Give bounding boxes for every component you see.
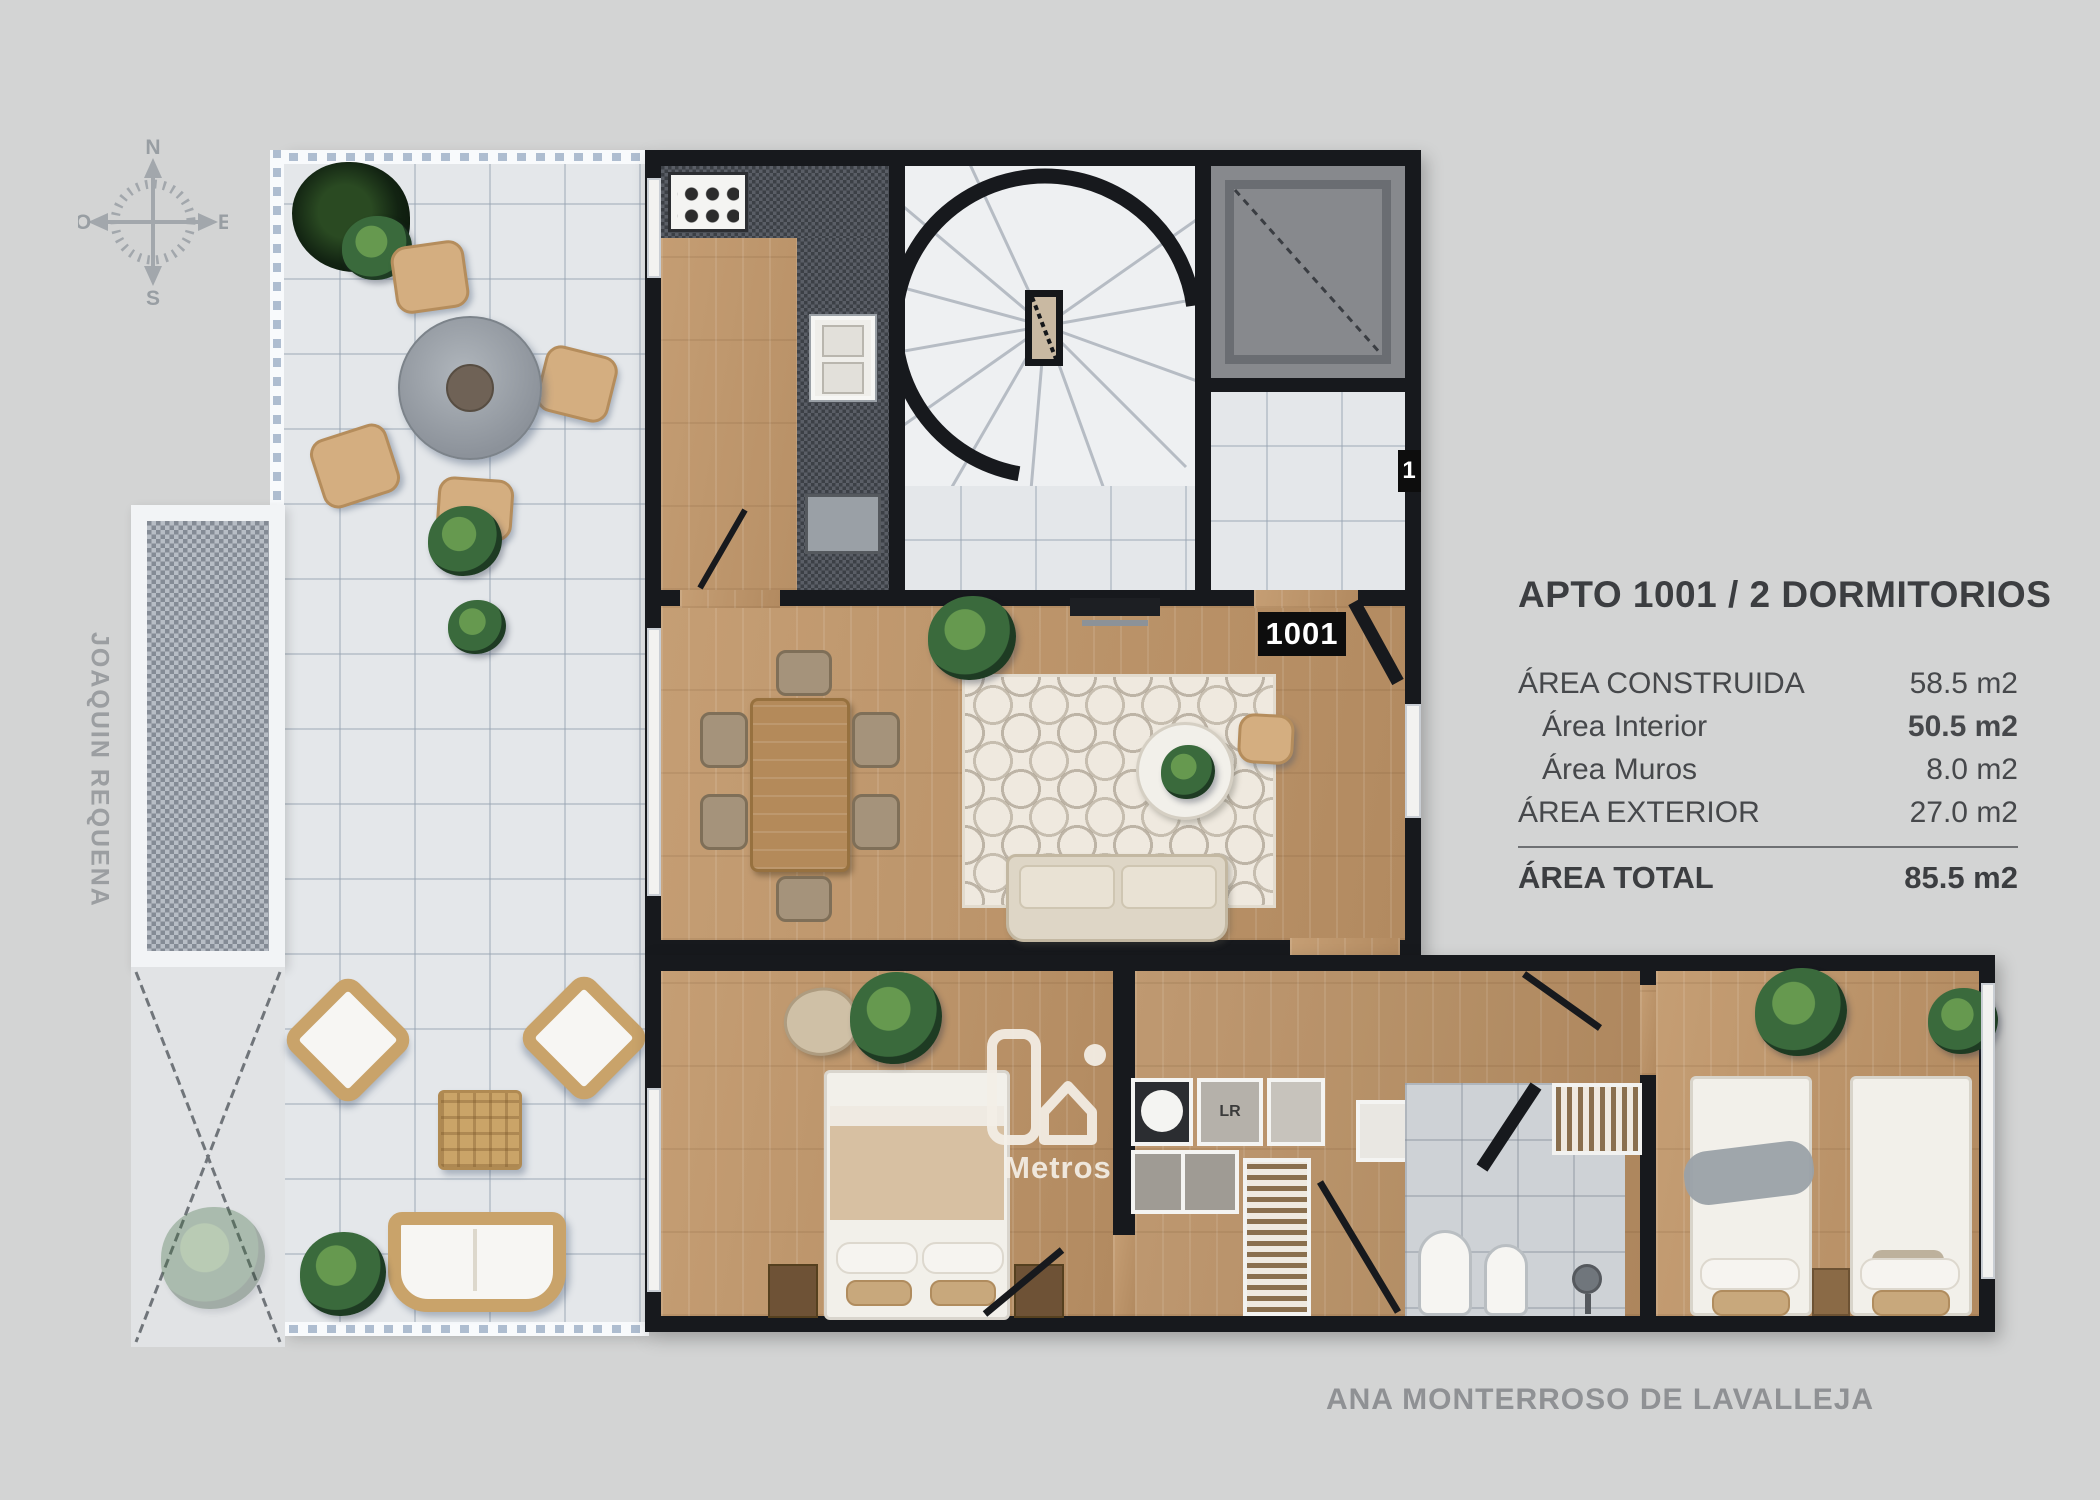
hall-living-opening bbox=[1254, 590, 1358, 608]
sofa-cushion bbox=[1019, 865, 1115, 909]
shower-pipe bbox=[1585, 1294, 1591, 1314]
wicker-coffee-table bbox=[438, 1090, 522, 1170]
coffee-table bbox=[1136, 722, 1234, 820]
bed-pillow-accent bbox=[930, 1280, 996, 1306]
terrace-round-table bbox=[398, 316, 542, 460]
divider bbox=[1518, 846, 2018, 848]
shaft bbox=[1211, 166, 1405, 378]
unit-number-tag-partial: 1 bbox=[1398, 450, 1421, 492]
adjacent-void-area bbox=[131, 967, 285, 1347]
brand-logo-icon: Metros bbox=[978, 1028, 1138, 1188]
stove-burners bbox=[677, 179, 739, 223]
washer-drum bbox=[1141, 1090, 1183, 1132]
shower-head bbox=[1572, 1264, 1602, 1294]
stove bbox=[668, 172, 748, 232]
info-panel: APTO 1001 / 2 DORMITORIOS ÁREA CONSTRUID… bbox=[1518, 574, 2018, 896]
closet-rack bbox=[1552, 1083, 1642, 1155]
dining-chair bbox=[700, 712, 748, 768]
compass-south-label: S bbox=[146, 287, 160, 306]
table-centerpiece bbox=[446, 364, 494, 412]
nightstand bbox=[1812, 1268, 1850, 1316]
area-row: Área Muros 8.0 m2 bbox=[1518, 748, 2018, 791]
storage-cabinet bbox=[1131, 1150, 1239, 1214]
living-terrace-door bbox=[647, 628, 661, 896]
bed-pillow bbox=[1860, 1258, 1960, 1290]
dining-chair bbox=[852, 712, 900, 768]
compass-north-label: N bbox=[145, 138, 160, 159]
gravel-planter-frame bbox=[131, 505, 285, 967]
area-total-value: 85.5 m2 bbox=[1904, 860, 2018, 896]
entry-door bbox=[1405, 704, 1421, 818]
tv-console bbox=[1082, 620, 1148, 626]
wicker-loveseat bbox=[388, 1212, 566, 1312]
area-row-label: Área Interior bbox=[1518, 705, 1707, 748]
dining-chair bbox=[776, 876, 832, 922]
bedroom2-door-opening bbox=[1640, 985, 1656, 1075]
bed-pillow-accent bbox=[846, 1280, 912, 1306]
laundry-unit: LR bbox=[1197, 1078, 1263, 1146]
gravel-planter bbox=[147, 521, 269, 951]
tv bbox=[1070, 598, 1160, 616]
bed-pillow bbox=[836, 1242, 918, 1274]
area-row-value: 58.5 m2 bbox=[1910, 662, 2018, 705]
area-row-label: ÁREA CONSTRUIDA bbox=[1518, 662, 1805, 705]
side-chair bbox=[1237, 713, 1296, 766]
bed-pillow bbox=[1700, 1258, 1800, 1290]
area-row-label: Área Muros bbox=[1518, 748, 1697, 791]
pantry-rack bbox=[1243, 1158, 1311, 1316]
area-row-label: ÁREA EXTERIOR bbox=[1518, 791, 1760, 834]
dining-table bbox=[750, 698, 850, 872]
terrace-chair bbox=[389, 238, 472, 316]
stair-landing-floor bbox=[905, 486, 1195, 590]
toilet bbox=[1418, 1230, 1472, 1316]
compass-west-label: O bbox=[78, 211, 91, 234]
bedroom1-window bbox=[647, 1088, 661, 1292]
area-row-value: 8.0 m2 bbox=[1926, 748, 2018, 791]
area-total-row: ÁREA TOTAL 85.5 m2 bbox=[1518, 860, 2018, 896]
terrace-parapet-bottom bbox=[270, 1322, 649, 1336]
watermark-text: Metros bbox=[1004, 1150, 1112, 1185]
sofa-cushion bbox=[1121, 865, 1217, 909]
street-label-bottom: ANA MONTERROSO DE LAVALLEJA bbox=[1290, 1383, 1910, 1417]
utility-box bbox=[1356, 1100, 1410, 1162]
unit-number-tag: 1001 bbox=[1258, 612, 1346, 656]
nightstand bbox=[1014, 1264, 1064, 1318]
bed-pillow-accent bbox=[1712, 1290, 1790, 1316]
sink-basin bbox=[822, 325, 864, 357]
loveseat-cushion-divider bbox=[473, 1229, 477, 1291]
dining-chair bbox=[700, 794, 748, 850]
compass-icon: N S E O bbox=[78, 138, 228, 306]
counter-unit bbox=[1267, 1078, 1325, 1146]
area-row: ÁREA CONSTRUIDA 58.5 m2 bbox=[1518, 662, 2018, 705]
fridge bbox=[805, 494, 881, 554]
watermark: Metros bbox=[978, 1028, 1138, 1188]
compass-rose: N S E O bbox=[78, 138, 228, 306]
bed-pillow bbox=[922, 1242, 1004, 1274]
area-row: Área Interior 50.5 m2 bbox=[1518, 705, 2018, 748]
sink-basin bbox=[822, 362, 864, 394]
kitchen-sink bbox=[811, 316, 875, 400]
entry-hall-floor bbox=[1211, 392, 1405, 590]
washing-machine bbox=[1131, 1078, 1193, 1146]
bed-pillow-accent bbox=[1872, 1290, 1950, 1316]
sofa bbox=[1006, 854, 1228, 942]
kitchen-living-opening bbox=[680, 590, 780, 608]
terrace-parapet-top bbox=[270, 150, 649, 164]
nightstand bbox=[768, 1264, 818, 1318]
shaft-diagonal-icon bbox=[1211, 166, 1405, 378]
apartment-title: APTO 1001 / 2 DORMITORIOS bbox=[1518, 574, 2018, 616]
bedroom1-door-opening bbox=[1113, 1235, 1135, 1316]
street-label-left: JOAQUIN REQUENA bbox=[76, 588, 122, 952]
dining-chair bbox=[852, 794, 900, 850]
area-row: ÁREA EXTERIOR 27.0 m2 bbox=[1518, 791, 2018, 834]
dining-chair bbox=[776, 650, 832, 696]
kitchen-window bbox=[647, 178, 661, 278]
area-total-label: ÁREA TOTAL bbox=[1518, 860, 1714, 896]
bidet bbox=[1484, 1244, 1528, 1316]
area-row-value: 27.0 m2 bbox=[1910, 791, 2018, 834]
bedroom2-window bbox=[1981, 983, 1995, 1279]
coffee-table-plant bbox=[1161, 745, 1215, 799]
area-table: ÁREA CONSTRUIDA 58.5 m2 Área Interior 50… bbox=[1518, 662, 2018, 896]
compass-east-label: E bbox=[218, 211, 228, 234]
area-row-value: 50.5 m2 bbox=[1908, 705, 2018, 748]
